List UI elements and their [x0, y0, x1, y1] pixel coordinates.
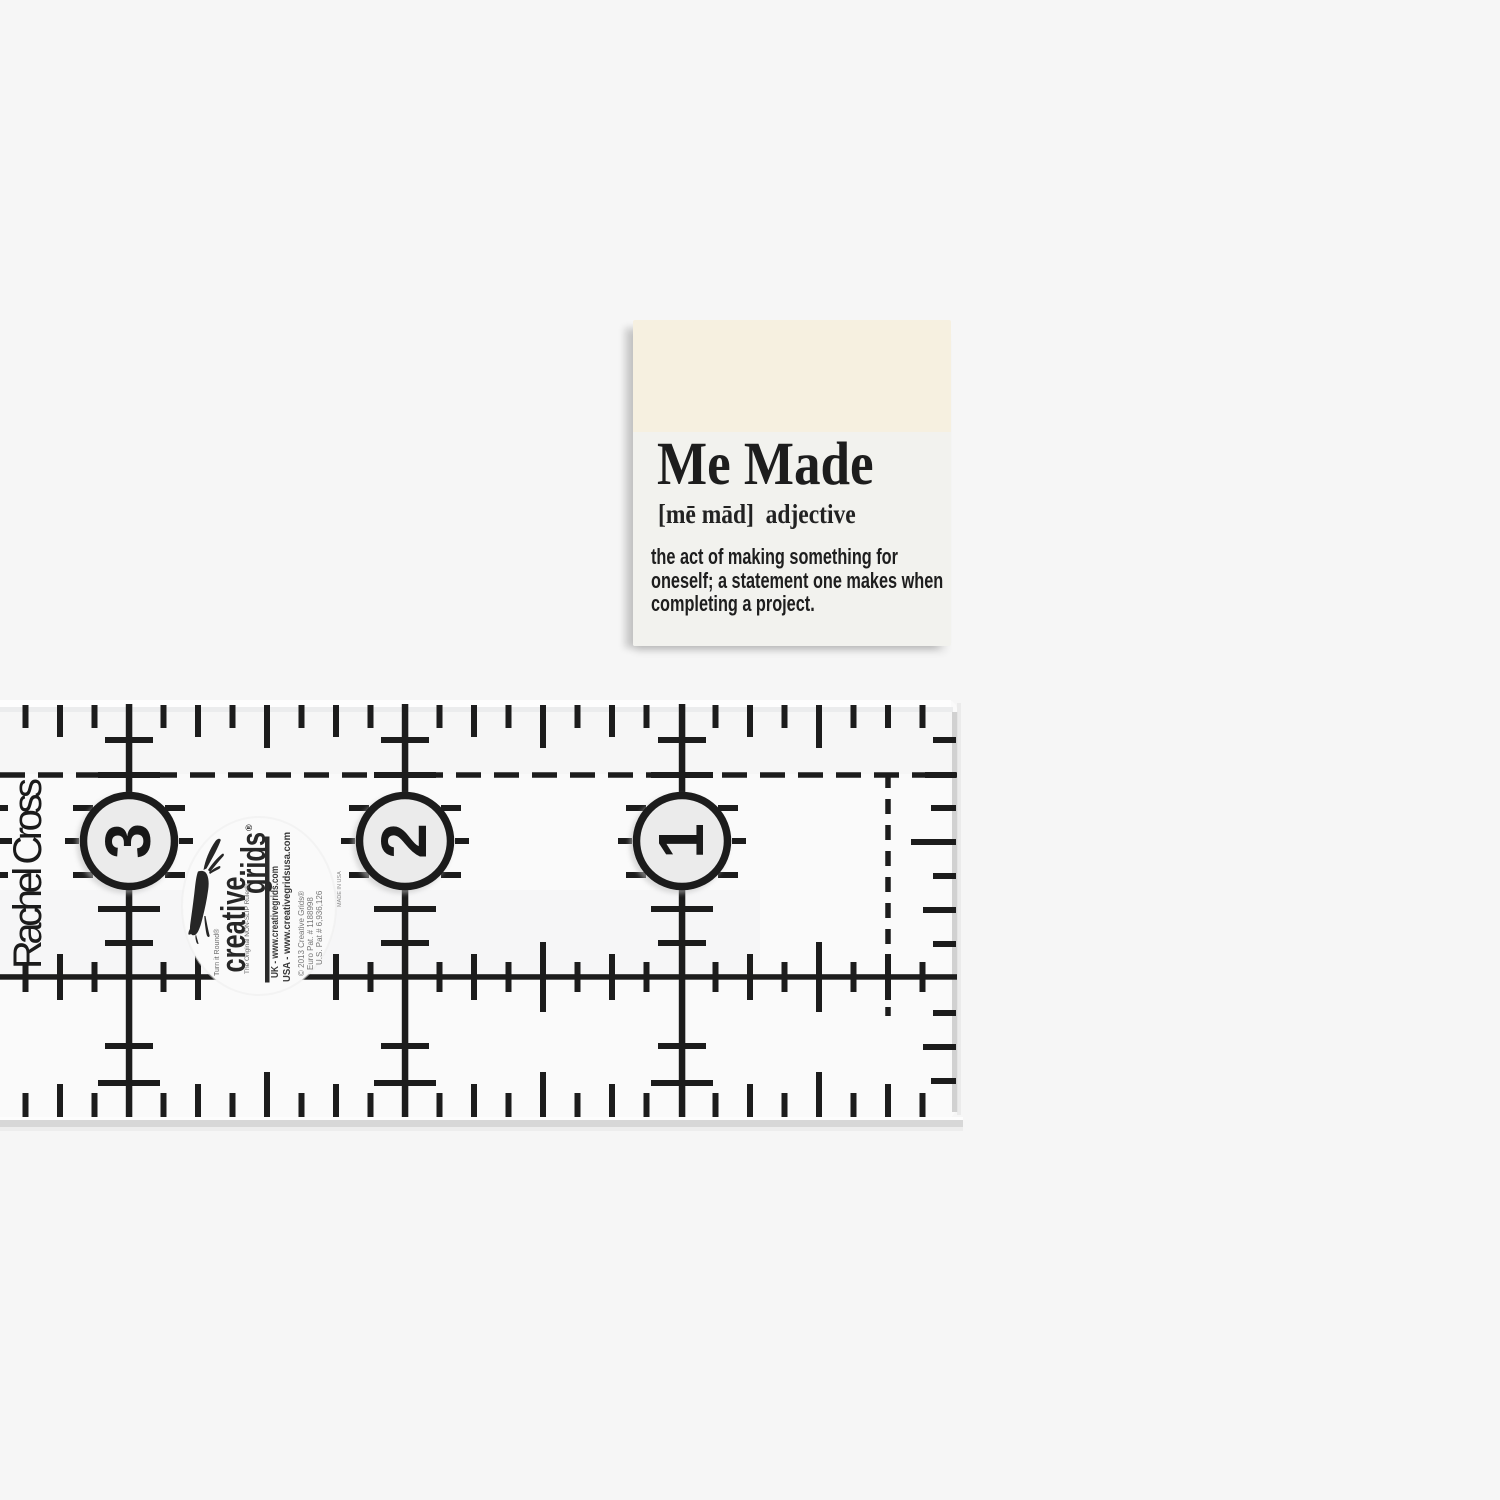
- svg-text:®: ®: [244, 824, 254, 831]
- svg-text:Turn it Round®: Turn it Round®: [213, 928, 221, 976]
- svg-text:UK - www.creativegrids.com: UK - www.creativegrids.com: [270, 866, 281, 978]
- svg-text:2: 2: [368, 823, 440, 859]
- svg-text:U.S. Pat # 6,936,126: U.S. Pat # 6,936,126: [315, 890, 324, 965]
- svg-text:Euro Pat. # 1188998: Euro Pat. # 1188998: [306, 897, 315, 970]
- svg-text:© 2013 Creative Grids®: © 2013 Creative Grids®: [297, 891, 306, 976]
- svg-text:3: 3: [92, 823, 164, 859]
- svg-text:USA - www.creativegridsusa.com: USA - www.creativegridsusa.com: [282, 832, 293, 982]
- svg-text:Rachel Cross: Rachel Cross: [6, 778, 50, 969]
- svg-text:The Original NON-SLIP Ruler®: The Original NON-SLIP Ruler®: [243, 884, 251, 974]
- svg-text:1: 1: [645, 823, 717, 859]
- svg-text:MADE IN USA: MADE IN USA: [337, 871, 343, 907]
